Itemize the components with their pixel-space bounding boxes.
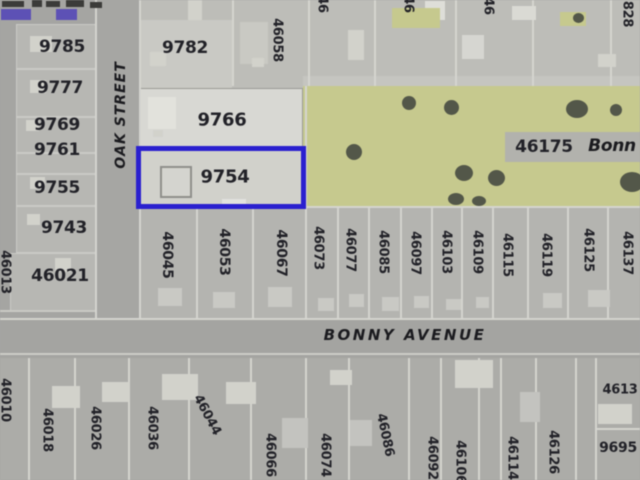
- building-footprint: [455, 360, 493, 388]
- highlight-bar: [1, 9, 31, 20]
- building-footprint: [446, 299, 461, 310]
- green-patch: [392, 8, 440, 28]
- lot-line: [595, 358, 597, 480]
- building-footprint: [268, 287, 292, 307]
- building-footprint: [512, 6, 536, 20]
- building-footprint: [153, 130, 163, 137]
- building-footprint: [543, 293, 562, 308]
- building-footprint: [462, 35, 484, 59]
- clipped-text-fragment: [90, 2, 102, 8]
- building-footprint: [158, 288, 182, 306]
- lot-line: [250, 358, 252, 480]
- lot-line: [527, 207, 529, 318]
- map-viewport[interactable]: 9785 9777 9769 9761 9755 9743 46021 4601…: [0, 0, 640, 480]
- tree-symbol: [472, 196, 486, 206]
- building-footprint: [318, 298, 334, 311]
- tree-symbol: [610, 104, 622, 116]
- plat-map: 9785 9777 9769 9761 9755 9743 46021 4601…: [0, 0, 640, 480]
- lot-line: [28, 358, 30, 480]
- building-footprint: [330, 370, 352, 385]
- lot-line: [232, 0, 234, 86]
- building-footprint: [148, 97, 176, 129]
- lot-line: [500, 358, 502, 480]
- lot-line: [492, 207, 494, 318]
- lot-line: [408, 358, 410, 480]
- road-edge: [0, 318, 640, 320]
- building-footprint: [213, 292, 235, 308]
- lot-line: [461, 207, 463, 318]
- building-footprint: [414, 296, 429, 308]
- lot-line: [610, 0, 612, 86]
- bonny-avenue-road: [0, 318, 640, 358]
- building-footprint: [188, 0, 202, 20]
- lot-line: [368, 207, 370, 318]
- building-footprint: [598, 404, 632, 424]
- clipped-text-fragment: [32, 0, 42, 7]
- lot-line: [252, 207, 254, 318]
- tree-symbol: [448, 193, 464, 205]
- building-footprint: [348, 30, 364, 60]
- building-footprint: [162, 374, 198, 400]
- lot-line: [74, 358, 76, 480]
- lot-line: [196, 207, 198, 318]
- clipped-text-fragment: [2, 1, 24, 7]
- tree-symbol: [455, 165, 473, 181]
- lot-line: [308, 0, 310, 86]
- road-edge: [0, 353, 640, 355]
- lot-line: [128, 358, 130, 480]
- building-footprint: [252, 58, 264, 67]
- building-footprint: [52, 386, 80, 408]
- building-footprint: [102, 382, 130, 402]
- building-footprint: [27, 214, 40, 225]
- tree-symbol: [573, 13, 584, 23]
- tree-symbol: [488, 170, 505, 186]
- tree-symbol: [346, 144, 362, 160]
- tree-symbol: [566, 100, 588, 118]
- building-footprint: [520, 392, 540, 422]
- lot-line: [455, 0, 457, 86]
- building-footprint: [598, 54, 616, 67]
- clipped-text-fragment: [66, 0, 84, 7]
- lot-line: [374, 0, 376, 86]
- building-footprint: [349, 294, 364, 307]
- lot-line: [95, 0, 97, 318]
- building-footprint: [476, 297, 489, 308]
- building-footprint: [382, 297, 399, 311]
- lot-line: [400, 207, 402, 318]
- building-footprint: [588, 290, 610, 307]
- clipped-text-fragment: [46, 1, 60, 7]
- lot-line: [440, 358, 442, 480]
- lot-line: [337, 207, 339, 318]
- lot-line: [0, 310, 95, 312]
- tree-symbol: [402, 96, 416, 110]
- lot-line: [567, 207, 569, 318]
- building-footprint: [282, 418, 308, 448]
- tree-symbol: [620, 172, 640, 192]
- lot-line: [575, 358, 577, 480]
- lot-line: [431, 207, 433, 318]
- tree-symbol: [444, 100, 459, 115]
- highlight-bar: [56, 9, 77, 20]
- building-footprint: [226, 382, 256, 404]
- lot-line: [595, 428, 640, 430]
- building-footprint: [350, 420, 372, 446]
